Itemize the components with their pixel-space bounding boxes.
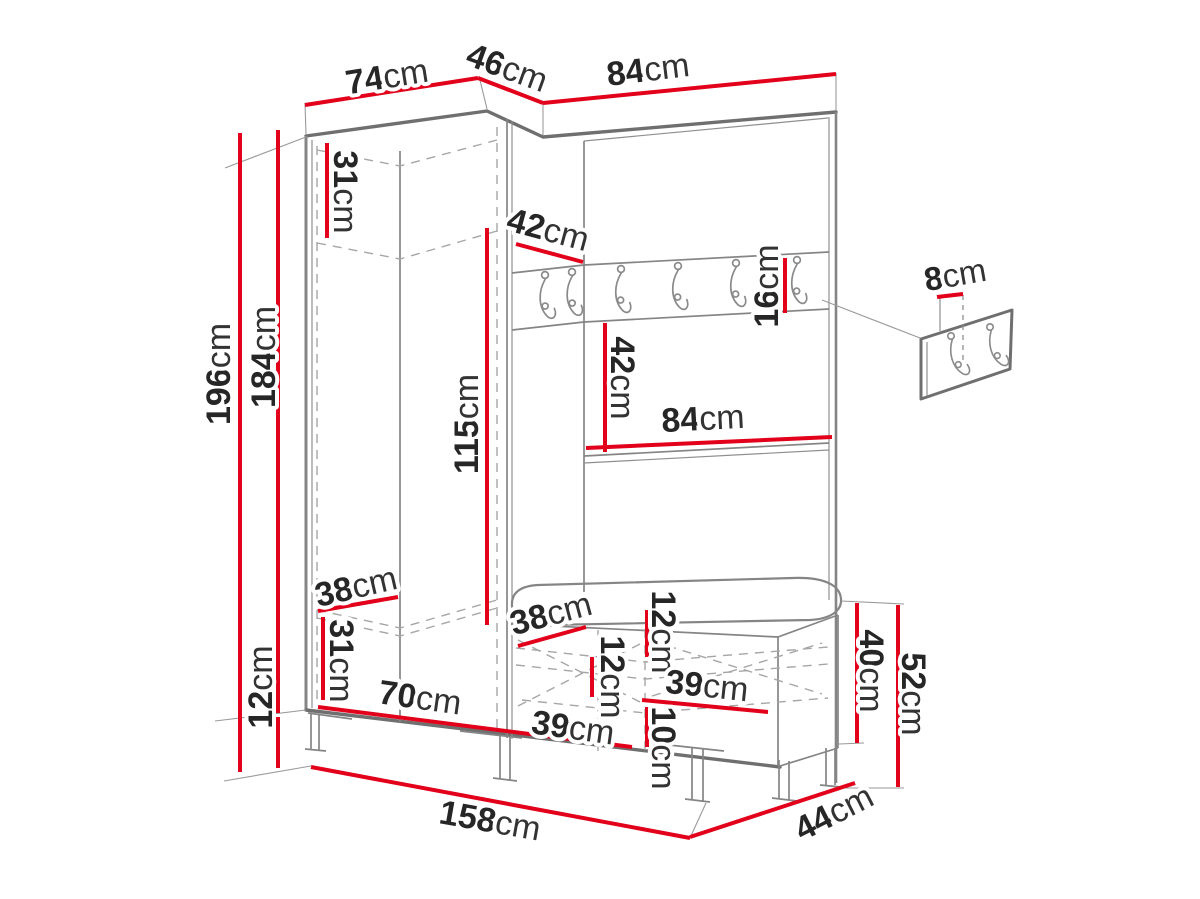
dimension-12cm-drawer: 12cm bbox=[592, 635, 631, 718]
coat-hook-icon bbox=[565, 268, 583, 316]
dimension-label: 31cm bbox=[322, 619, 360, 702]
dimension-label: 12cm bbox=[593, 635, 631, 718]
top-edge bbox=[306, 111, 836, 137]
dimension-label: 8cm bbox=[921, 250, 989, 297]
coat-hook-icon bbox=[729, 259, 746, 307]
dimension-31cm-top: 31cm bbox=[326, 143, 364, 238]
extension-line bbox=[839, 743, 864, 744]
dimension-38cm-bench: 38cm bbox=[506, 585, 596, 646]
dimension-label: 184cm bbox=[245, 306, 283, 408]
dimension-38cm-left: 38cm bbox=[311, 559, 401, 615]
dimension-label: 31cm bbox=[326, 150, 364, 233]
dimension-42cm-middle: 42cm bbox=[603, 323, 641, 452]
dimension-label: 42cm bbox=[503, 201, 593, 259]
coat-hook-icon bbox=[671, 262, 688, 310]
wardrobe-right-leg bbox=[493, 735, 517, 781]
dimension-label: 84cm bbox=[604, 46, 691, 94]
dimension-184cm: 184cm bbox=[245, 130, 283, 713]
dimension-52cm: 52cm bbox=[894, 605, 932, 787]
dimension-42cm-top: 42cm bbox=[503, 201, 593, 262]
dimension-84cm-top: 84cm bbox=[543, 46, 836, 103]
bench-side-top-edge bbox=[778, 615, 838, 637]
dimension-8cm: 8cm bbox=[921, 250, 989, 297]
furniture-dimension-diagram: 74cm 46cm 84cm 31cm 42cm 16cm 8cm 196cm … bbox=[0, 0, 1200, 899]
coat-hook-icon bbox=[614, 265, 631, 313]
dimension-label: 84cm bbox=[660, 398, 745, 440]
dimension-label: 74cm bbox=[343, 52, 431, 103]
dimension-label: 196cm bbox=[200, 323, 238, 425]
diagram-canvas: 74cm 46cm 84cm 31cm 42cm 16cm 8cm 196cm … bbox=[0, 0, 1200, 899]
extension-line bbox=[305, 103, 306, 134]
dimension-line bbox=[586, 437, 832, 448]
dimension-12cm-legs: 12cm bbox=[242, 645, 280, 768]
dimension-label: 38cm bbox=[506, 585, 596, 643]
dimension-16cm: 16cm bbox=[748, 244, 786, 327]
dimension-label: 12cm bbox=[644, 590, 682, 673]
dashed-detail-line bbox=[317, 231, 497, 259]
dimension-label: 12cm bbox=[242, 645, 280, 728]
dimension-46cm: 46cm bbox=[461, 36, 552, 103]
extension-line bbox=[224, 766, 311, 781]
dimension-10cm: 10cm bbox=[644, 706, 682, 789]
panel-rear-leg bbox=[820, 748, 841, 787]
dimension-74cm: 74cm bbox=[305, 52, 478, 105]
dimension-label: 40cm bbox=[852, 629, 890, 712]
dimension-label: 115cm bbox=[448, 374, 486, 474]
dimension-31cm-bottom: 31cm bbox=[322, 617, 360, 703]
dimension-40cm: 40cm bbox=[852, 603, 890, 743]
dimension-label: 158cm bbox=[436, 793, 543, 848]
dimension-44cm: 44cm bbox=[690, 777, 880, 849]
dimension-12cm-seat: 12cm bbox=[644, 590, 682, 673]
dimension-label: 10cm bbox=[644, 706, 682, 789]
dimension-115cm: 115cm bbox=[448, 228, 487, 625]
detail-hook-panel bbox=[921, 310, 1012, 399]
coat-hook-icon bbox=[538, 271, 556, 319]
hook-panel-detail bbox=[822, 295, 1012, 399]
dimension-label: 52cm bbox=[894, 652, 932, 735]
dimension-label: 38cm bbox=[311, 559, 401, 615]
dimension-196cm: 196cm bbox=[200, 133, 240, 772]
dimension-label: 42cm bbox=[603, 336, 641, 419]
shelf-lower-edge bbox=[584, 450, 829, 463]
dimension-label: 16cm bbox=[748, 244, 786, 327]
coat-hook-icon bbox=[790, 256, 807, 304]
wardrobe-left-leg bbox=[305, 714, 326, 751]
extension-line bbox=[841, 601, 904, 604]
extension-line bbox=[225, 137, 306, 168]
